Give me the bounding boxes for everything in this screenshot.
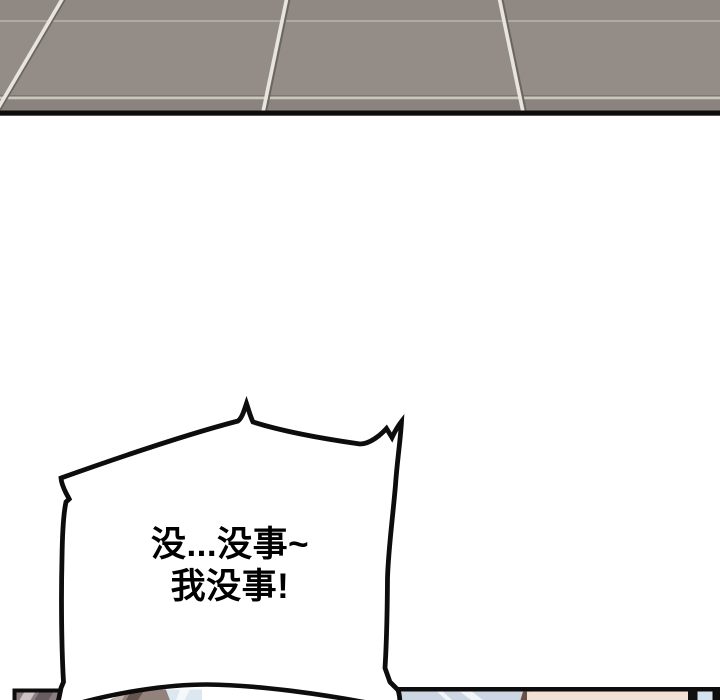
speech-bubble-text: 没...没事~ 我没事! (60, 524, 400, 608)
floor-panel (0, 0, 720, 116)
right-fragment-right-border (713, 687, 720, 700)
right-fragment-blue-sliver (698, 692, 714, 700)
tile-top-strip (0, 0, 720, 21)
right-fragment-blue-area (396, 692, 523, 700)
right-fragment-skin-area (527, 692, 688, 700)
right-fragment-border (396, 687, 720, 692)
floor-panel-border (0, 111, 720, 116)
speech-text-line-1: 没...没事~ (60, 524, 400, 566)
next-panel-right-fragment (396, 687, 720, 700)
tile-bottom-strip (0, 99, 720, 111)
speech-text-line-2: 我没事! (60, 566, 400, 608)
right-fragment-black-bar (688, 690, 698, 700)
comic-page: 没...没事~ 我没事! (0, 0, 720, 700)
